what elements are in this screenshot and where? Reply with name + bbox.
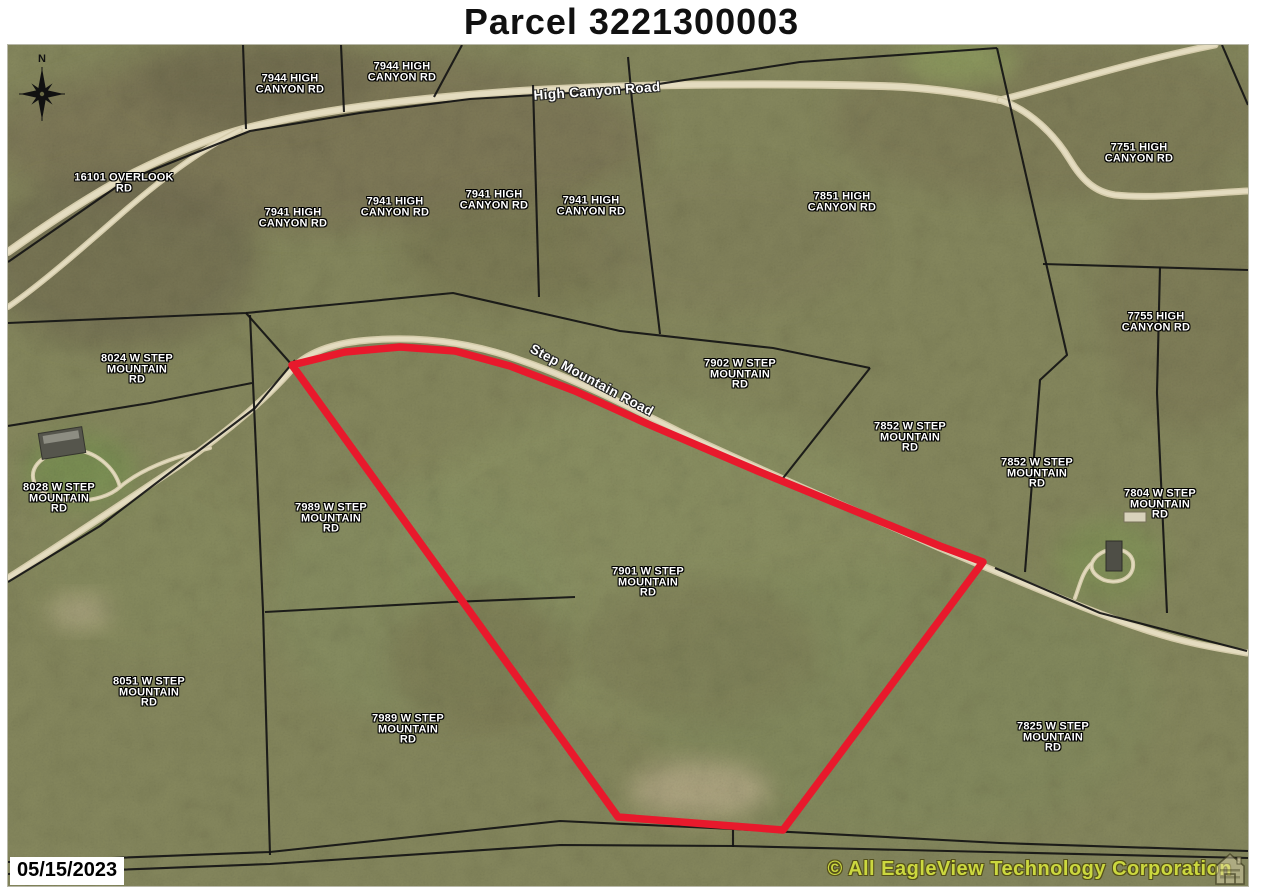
map-overlay-svg bbox=[8, 45, 1248, 886]
date-stamp: 05/15/2023 bbox=[10, 857, 124, 885]
aerial-map: 7944 HIGH CANYON RD7944 HIGH CANYON RD16… bbox=[8, 45, 1248, 886]
north-arrow-icon: N bbox=[18, 50, 66, 128]
house-watermark-icon bbox=[1212, 850, 1248, 886]
page-title: Parcel 3221300003 bbox=[0, 0, 1263, 44]
terrain-grain-noise bbox=[8, 45, 1248, 886]
north-label: N bbox=[38, 53, 46, 65]
shed-7804 bbox=[1124, 512, 1146, 522]
house-7804 bbox=[1106, 541, 1122, 571]
copyright-text: © All EagleView Technology Corporation bbox=[827, 858, 1232, 881]
parcel-map-page: Parcel 3221300003 bbox=[0, 0, 1263, 893]
